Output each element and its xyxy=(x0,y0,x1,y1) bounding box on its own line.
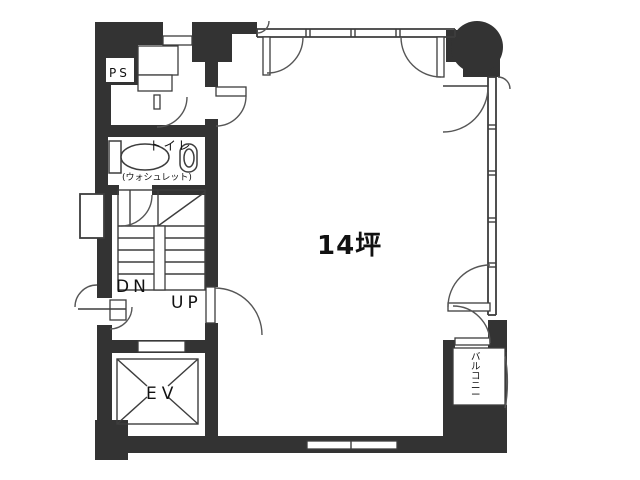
round-pillar-column xyxy=(451,21,503,73)
entrance-door-arc-outer xyxy=(75,285,97,307)
top-window-door-right-arc xyxy=(401,37,441,77)
core-upper-door-panel xyxy=(216,87,246,96)
floor-plan-page: PS トイレ (ウォシュレット) DN UP EV 14坪 バルコニー xyxy=(0,0,640,480)
right-upper-door-arc xyxy=(443,87,488,132)
wall-top-left-bar xyxy=(95,22,163,45)
entrance-door-leaf xyxy=(110,300,126,320)
floor-plan-svg: PS トイレ (ウォシュレット) DN UP EV 14坪 バルコニー xyxy=(0,0,640,480)
counter-lower xyxy=(138,75,172,91)
stair-center-divider xyxy=(154,226,165,290)
wall-toilet-left xyxy=(95,137,108,185)
wall-left-upper xyxy=(95,85,111,125)
right-window-wall xyxy=(488,77,496,315)
core-lower-door-panel xyxy=(206,287,215,323)
ev-hall-opening xyxy=(138,341,185,352)
wall-balcony-bottom xyxy=(452,405,507,452)
bottom-window-slot xyxy=(307,441,397,449)
label-floor-area: 14坪 xyxy=(317,231,382,261)
top-wall-notch xyxy=(163,36,192,45)
counter-unit xyxy=(138,46,178,91)
wall-top-strip xyxy=(232,22,257,34)
balcony-door-panel xyxy=(455,338,490,345)
left-duct-protrusion xyxy=(80,194,104,238)
label-balcony: バルコニー xyxy=(471,352,481,401)
counter-top xyxy=(138,46,178,75)
right-window-top-small-arc xyxy=(498,77,510,89)
label-stairs-down: DN xyxy=(116,277,150,297)
top-corner-small-arc xyxy=(257,21,269,33)
right-lower-door-arc xyxy=(448,265,490,307)
top-window-door-right-panel xyxy=(437,37,444,77)
staircase xyxy=(118,190,205,290)
top-window-wall xyxy=(257,29,455,37)
toilet-tank xyxy=(109,141,121,173)
toilet-door-arc xyxy=(121,195,152,226)
label-toilet-note: (ウォシュレット) xyxy=(122,172,192,183)
kitchenette-door-panel xyxy=(154,95,160,109)
top-window-door-left-arc xyxy=(267,37,303,73)
label-stairs-up: UP xyxy=(171,293,202,313)
label-toilet: トイレ xyxy=(149,138,193,153)
core-upper-door-arc xyxy=(216,96,246,126)
stair-break-line xyxy=(158,192,205,226)
wall-core-vertical xyxy=(205,22,218,437)
wall-toilet-top xyxy=(95,125,205,137)
wall-left-lower xyxy=(97,325,112,423)
core-lower-door-arc xyxy=(215,288,262,335)
window-walls xyxy=(257,29,496,315)
label-elevator: EV xyxy=(146,384,178,404)
kitchenette-door-arc xyxy=(157,97,187,127)
label-ps: PS xyxy=(109,66,130,80)
top-window-door-left-panel xyxy=(263,37,270,75)
